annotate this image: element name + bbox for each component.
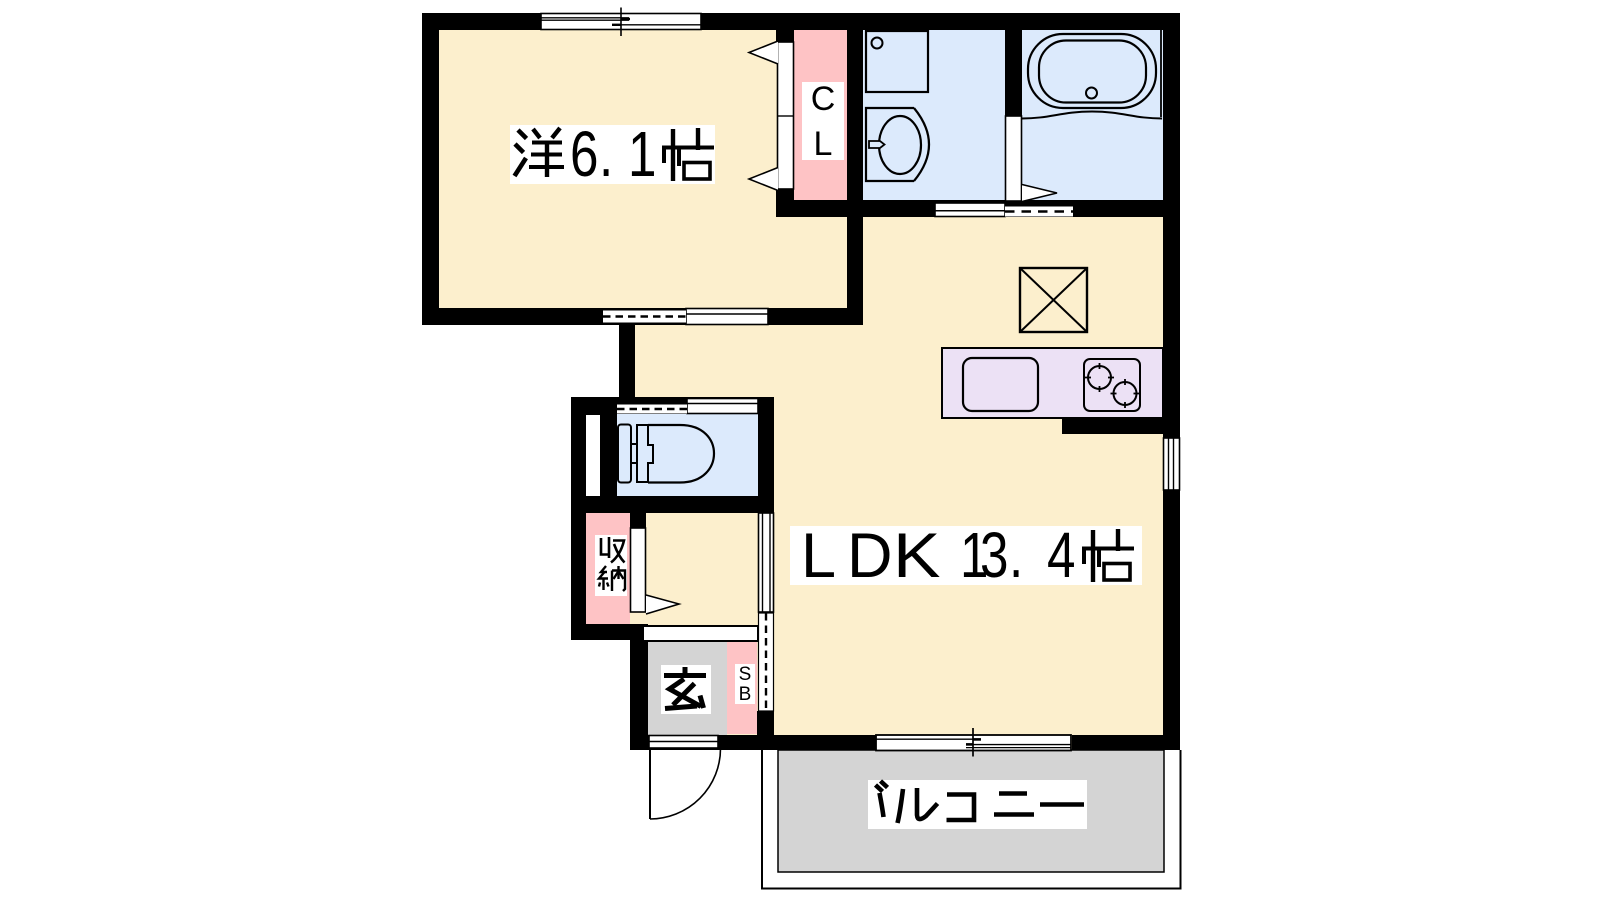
svg-text:.: . (1009, 521, 1023, 592)
svg-text:B: B (739, 684, 752, 705)
svg-text:L: L (801, 521, 836, 591)
svg-text:.: . (599, 120, 613, 191)
svg-text:6: 6 (570, 120, 598, 191)
svg-text:S: S (739, 664, 752, 685)
svg-text:C: C (811, 80, 836, 118)
svg-text:D: D (847, 521, 893, 591)
svg-text:3: 3 (980, 521, 1008, 592)
svg-text:K: K (893, 521, 941, 591)
svg-text:1: 1 (628, 120, 656, 191)
svg-text:4: 4 (1047, 521, 1075, 592)
svg-text:L: L (814, 125, 833, 163)
